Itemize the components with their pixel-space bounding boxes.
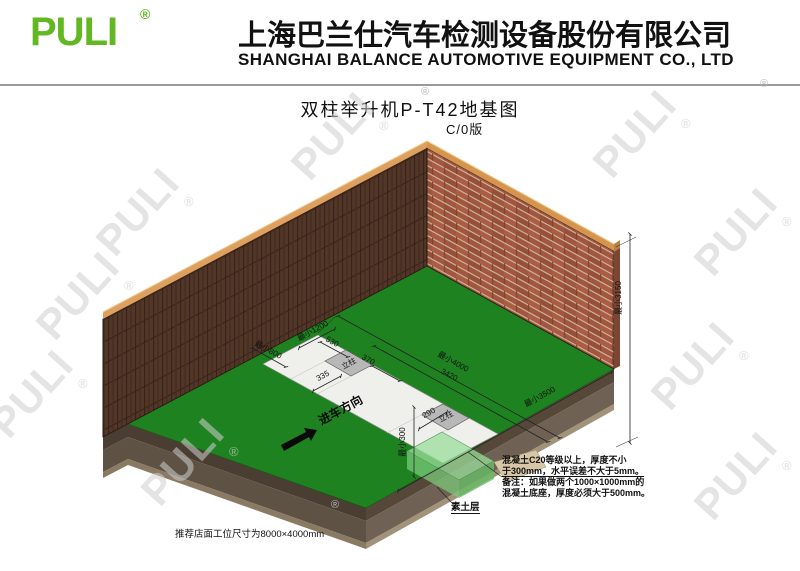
soil-layer-label: 素土层 [451, 499, 480, 514]
note-line: 混凝土底座，厚度必须大于500mm。 [502, 488, 680, 499]
dim-front-clearance: 最小300 [398, 427, 407, 457]
isometric-foundation-diagram: 立柱 立柱 [0, 0, 800, 571]
note-line: 于300mm，水平误差不大于5mm。 [502, 466, 680, 478]
footnote: 推荐店面工位尺寸为8000×4000mm [175, 526, 324, 540]
concrete-notes: 混凝土C20等级以上，厚度不小 于300mm，水平误差不大于5mm。 备注：如果… [502, 455, 680, 498]
foundation-drawing-page: PULI ® 上海巴兰仕汽车检测设备股份有限公司 SHANGHAI BALANC… [0, 0, 800, 571]
note-line: 备注：如果做两个1000×1000mm的 [502, 477, 680, 488]
note-line: 混凝土C20等级以上，厚度不小 [502, 455, 680, 466]
dim-ceiling-height: 最小3150 [614, 281, 623, 315]
